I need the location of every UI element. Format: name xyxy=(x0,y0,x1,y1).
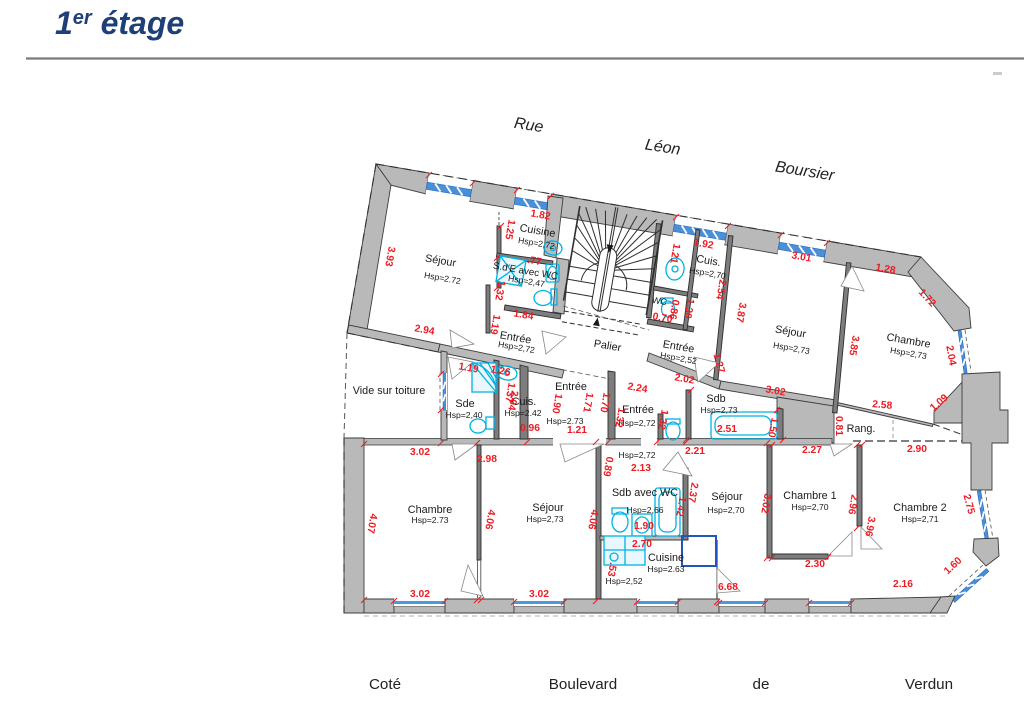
svg-text:Chambre 1: Chambre 1 xyxy=(783,490,836,502)
svg-text:2.27: 2.27 xyxy=(802,445,822,456)
svg-text:6.68: 6.68 xyxy=(718,582,738,593)
svg-text:Sdb: Sdb xyxy=(706,393,725,405)
svg-text:2.90: 2.90 xyxy=(907,444,927,455)
svg-text:Cuisine: Cuisine xyxy=(648,552,684,564)
svg-text:Hsp=2,40: Hsp=2,40 xyxy=(445,410,482,420)
svg-text:0.96: 0.96 xyxy=(520,423,540,434)
svg-text:2.98: 2.98 xyxy=(477,454,497,465)
svg-text:2.58: 2.58 xyxy=(872,399,893,412)
svg-text:2.51: 2.51 xyxy=(717,424,737,435)
svg-text:Sde: Sde xyxy=(455,398,474,410)
svg-text:Hsp=2.73: Hsp=2.73 xyxy=(411,515,448,525)
svg-text:Boulevard: Boulevard xyxy=(549,676,617,693)
svg-text:2.13: 2.13 xyxy=(631,463,651,474)
svg-text:Verdun: Verdun xyxy=(905,676,953,693)
svg-text:2.21: 2.21 xyxy=(685,446,705,457)
svg-text:Chambre 2: Chambre 2 xyxy=(893,502,946,514)
svg-text:Hsp=2,72: Hsp=2,72 xyxy=(618,450,655,460)
svg-text:2.16: 2.16 xyxy=(893,579,913,590)
svg-text:Sdb avec WC: Sdb avec WC xyxy=(612,487,678,499)
svg-text:Hsp=2,73: Hsp=2,73 xyxy=(700,405,737,415)
svg-text:Coté: Coté xyxy=(369,676,401,693)
svg-text:0.81: 0.81 xyxy=(833,416,844,436)
svg-text:Hsp=2,73: Hsp=2,73 xyxy=(526,514,563,524)
svg-text:Hsp=2,71: Hsp=2,71 xyxy=(901,514,938,524)
svg-text:2.30: 2.30 xyxy=(805,559,825,570)
svg-text:Hsp=2,70: Hsp=2,70 xyxy=(791,502,828,512)
svg-text:Séjour: Séjour xyxy=(711,491,743,503)
svg-text:3.02: 3.02 xyxy=(410,447,430,458)
svg-text:Hsp=2,70: Hsp=2,70 xyxy=(707,505,744,515)
svg-text:Entrée: Entrée xyxy=(555,381,587,393)
svg-text:Rang.: Rang. xyxy=(847,423,876,435)
svg-text:2.70: 2.70 xyxy=(632,539,652,550)
svg-text:3.02: 3.02 xyxy=(410,589,430,600)
svg-text:Hsp=2,66: Hsp=2,66 xyxy=(626,505,663,515)
svg-text:1.21: 1.21 xyxy=(567,425,587,436)
svg-text:Séjour: Séjour xyxy=(532,502,564,514)
svg-text:de: de xyxy=(753,676,770,693)
svg-text:Hsp=2,52: Hsp=2,52 xyxy=(605,576,642,586)
svg-text:1.90: 1.90 xyxy=(634,521,654,532)
svg-text:Vide sur toiture: Vide sur toiture xyxy=(353,385,425,397)
svg-text:3.02: 3.02 xyxy=(529,589,549,600)
svg-text:Hsp=2.63: Hsp=2.63 xyxy=(647,564,684,574)
